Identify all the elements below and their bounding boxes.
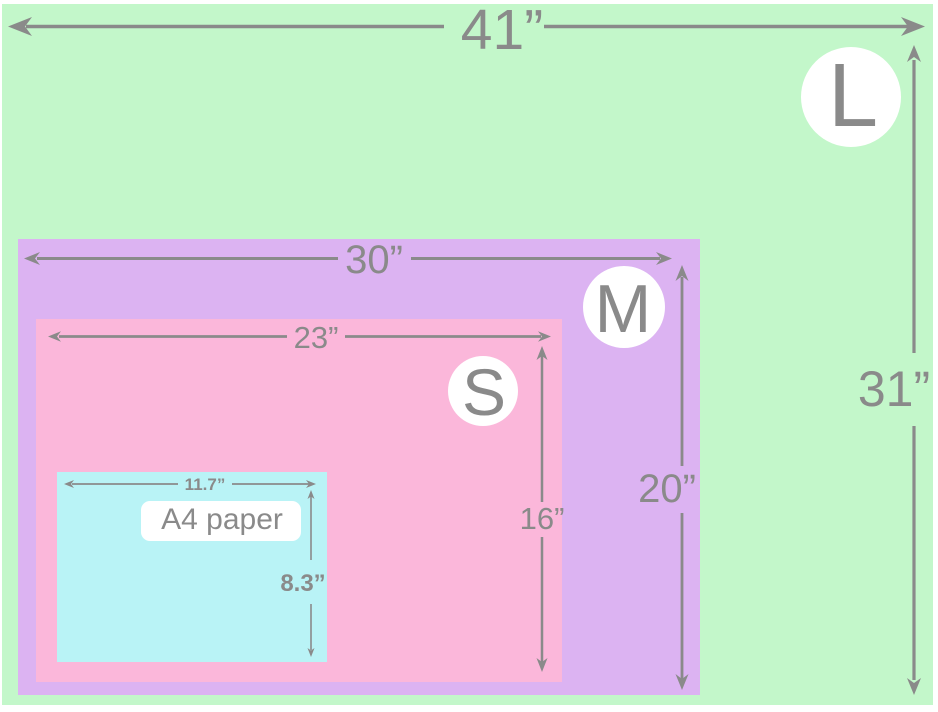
svg-text:16”: 16”: [520, 501, 565, 536]
svg-text:8.3”: 8.3”: [280, 570, 325, 597]
svg-text:31”: 31”: [858, 361, 930, 417]
svg-text:41”: 41”: [461, 0, 543, 62]
svg-text:11.7”: 11.7”: [185, 475, 226, 494]
svg-text:S: S: [462, 355, 506, 429]
svg-text:20”: 20”: [638, 467, 696, 511]
svg-text:23”: 23”: [294, 320, 339, 355]
svg-text:L: L: [828, 46, 878, 146]
svg-text:A4 paper: A4 paper: [161, 503, 283, 536]
svg-text:30”: 30”: [345, 238, 403, 282]
svg-text:M: M: [595, 271, 652, 347]
